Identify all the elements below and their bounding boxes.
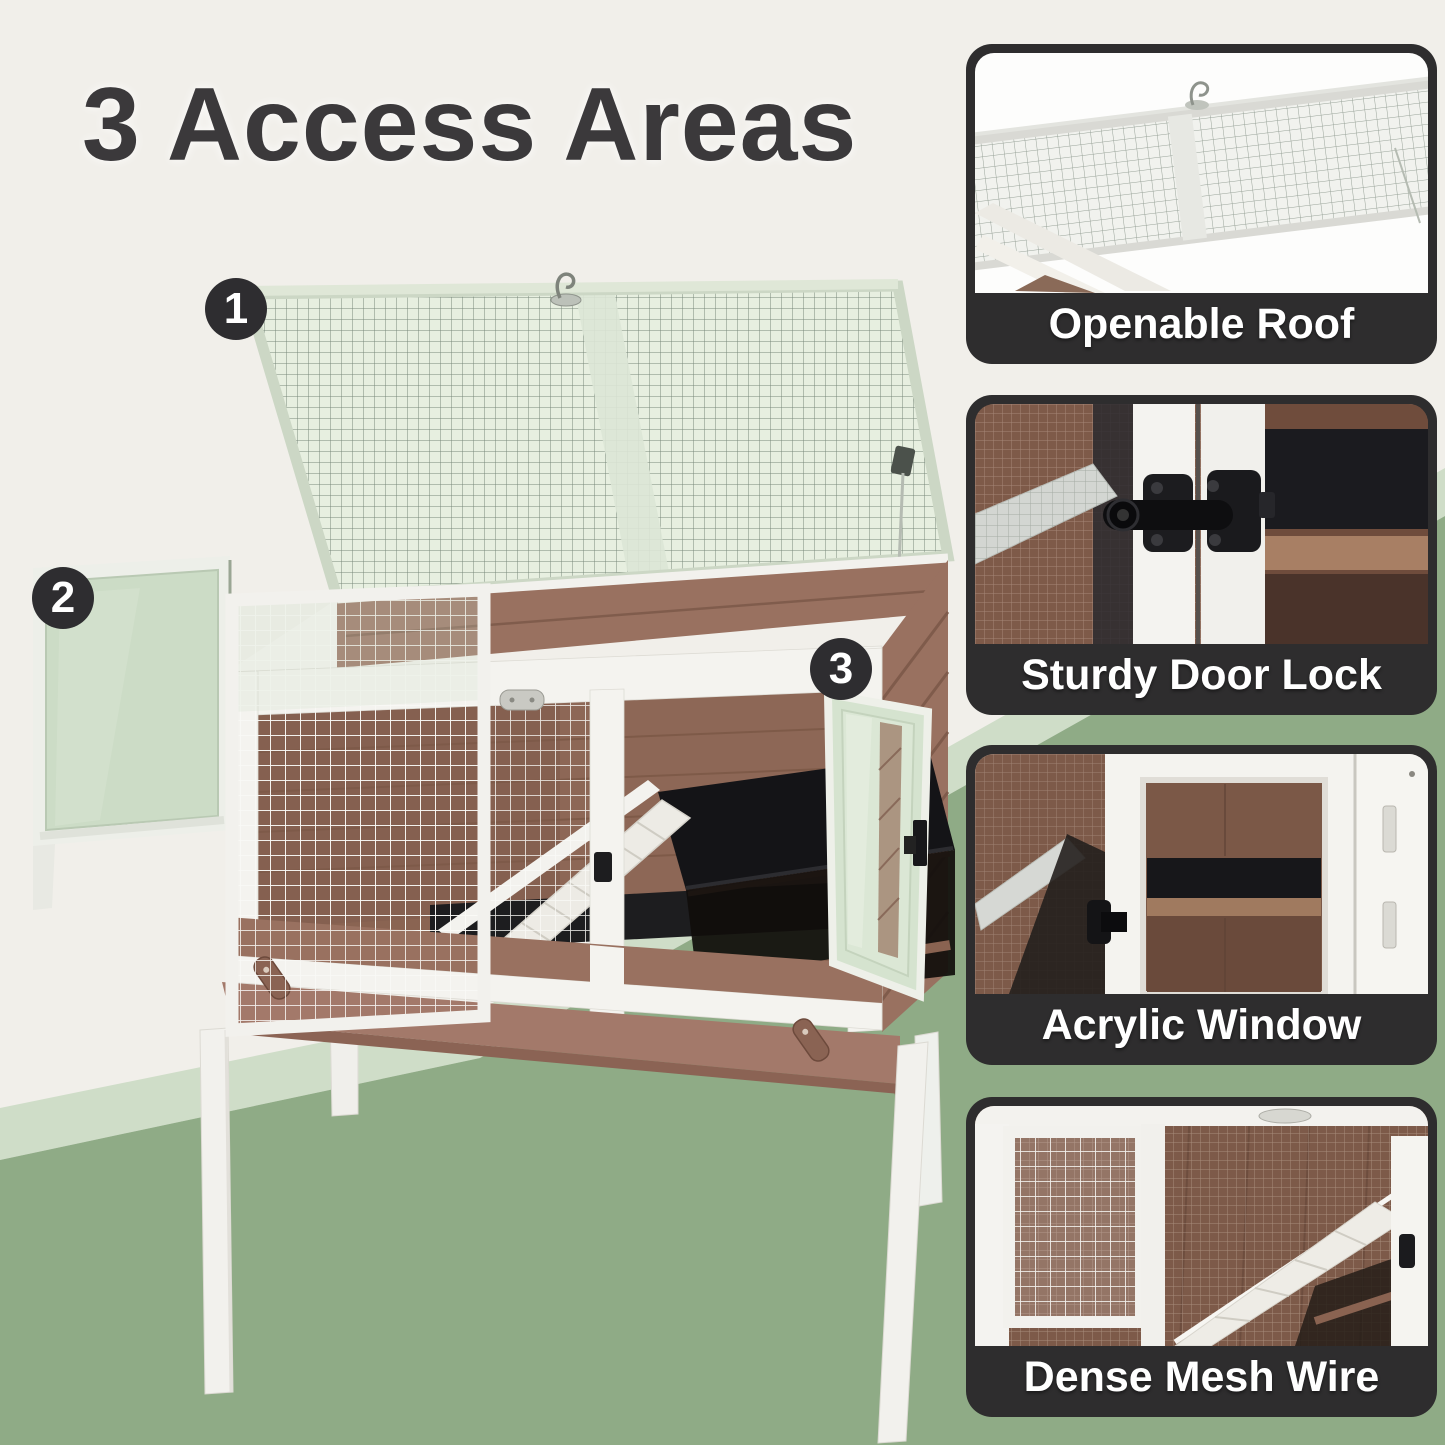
marker-3-number: 3	[829, 644, 853, 694]
feature-photo-sturdy-door-lock	[975, 404, 1428, 644]
page-title: 3 Access Areas	[82, 66, 857, 185]
roof-latch-plate	[551, 294, 581, 306]
feature-card-sturdy-door-lock: Sturdy Door Lock	[966, 395, 1437, 715]
center-latch	[594, 852, 612, 882]
feature-caption: Acrylic Window	[975, 994, 1428, 1056]
marker-3: 3	[810, 638, 872, 700]
feature-photo-openable-roof	[975, 53, 1428, 293]
marker-1: 1	[205, 278, 267, 340]
feature-card-acrylic-window: Acrylic Window	[966, 745, 1437, 1065]
latch-plate	[500, 690, 544, 710]
marker-2-number: 2	[51, 573, 75, 623]
marker-1-number: 1	[224, 284, 248, 334]
feature-card-openable-roof: Openable Roof	[966, 44, 1437, 364]
feature-card-dense-mesh-wire: Dense Mesh Wire	[966, 1097, 1437, 1417]
product-infographic: 3 Access Areas 1 2 3	[0, 0, 1445, 1445]
marker-2: 2	[32, 567, 94, 629]
feature-photo-acrylic-window	[975, 754, 1428, 994]
feature-photo-dense-mesh-wire	[975, 1106, 1428, 1346]
open-mesh-door	[232, 590, 484, 1030]
feature-caption: Sturdy Door Lock	[975, 644, 1428, 706]
feature-caption: Openable Roof	[975, 293, 1428, 355]
open-roof	[247, 274, 948, 597]
feature-caption: Dense Mesh Wire	[975, 1346, 1428, 1408]
open-front-door	[828, 694, 928, 996]
